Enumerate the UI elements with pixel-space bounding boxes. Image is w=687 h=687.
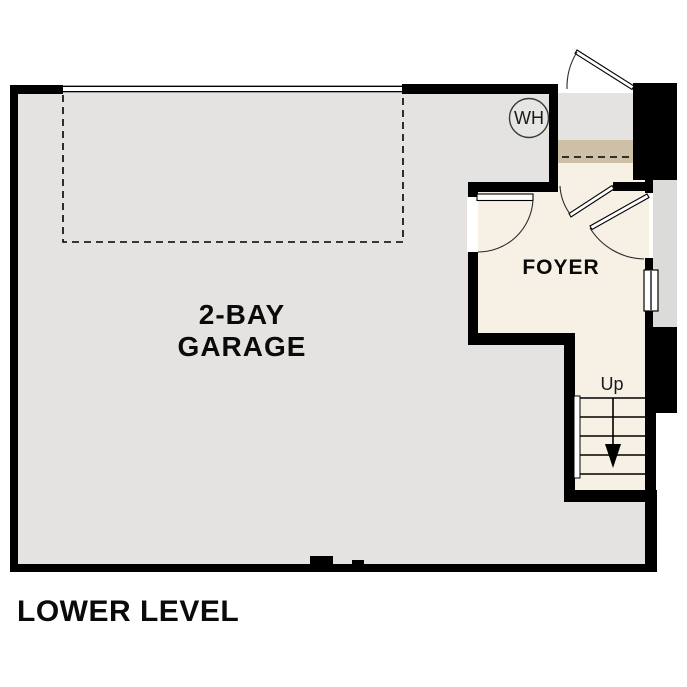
entry-door-swing-arc <box>567 52 577 89</box>
wall-post-bottom-large <box>310 556 333 566</box>
wall-right-top-chunk <box>633 83 677 180</box>
foyer-label: FOYER <box>522 256 599 279</box>
wall-right-mid-chunk <box>645 327 677 413</box>
wall-foyer-bottom <box>468 333 575 345</box>
floor-plan-drawing: WH Up 2-BAY GARAGE FOYER LOWER LEVEL <box>0 0 687 687</box>
entry-door <box>567 50 634 90</box>
water-heater-label: WH <box>514 108 544 128</box>
wall-stair-bottom <box>564 490 657 502</box>
stairs-up-label: Up <box>600 374 623 394</box>
wall-garage-right <box>645 490 657 572</box>
wall-foyer-top-right-stub <box>613 182 645 191</box>
wall-bottom-exterior <box>10 564 657 572</box>
wall-right-stairwell <box>645 413 656 490</box>
entry-door-leaf <box>575 50 634 90</box>
garage-door <box>63 85 402 93</box>
wall-foyer-top <box>468 182 558 192</box>
wall-post-bottom-small <box>352 560 364 566</box>
wall-top-left-corner <box>10 85 63 94</box>
garage-foyer-door-opening <box>467 197 478 252</box>
foyer-window <box>644 270 658 311</box>
water-heater: WH <box>510 99 549 138</box>
wall-foyer-left-lower <box>468 252 478 345</box>
garage-label-line1: 2-BAY <box>199 299 285 330</box>
wall-stair-left <box>564 333 575 500</box>
page-title: LOWER LEVEL <box>17 595 239 628</box>
wall-right-stub-above-door <box>645 180 653 193</box>
floor-plan-page: WH Up 2-BAY GARAGE FOYER LOWER LEVEL <box>0 0 687 687</box>
garage-label-line2: GARAGE <box>178 331 307 362</box>
garage-foyer-door-leaf <box>477 194 533 201</box>
stair-handrail <box>574 396 580 478</box>
wall-top-mid <box>402 84 558 94</box>
wall-left-exterior <box>10 85 18 572</box>
wall-landing-left <box>549 94 558 192</box>
upper-stair-flight <box>558 140 645 163</box>
